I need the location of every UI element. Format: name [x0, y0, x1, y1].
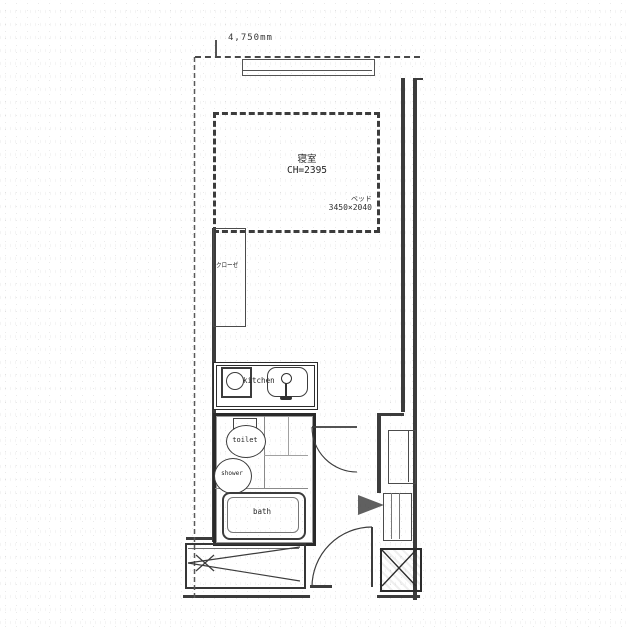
entry-arrow-icon: [358, 495, 384, 515]
stair-diagonal: [188, 547, 300, 563]
floor-plan-canvas: 4,750mm 寝室 CH=2395 ベッド 3450×2040 クローゼ ki…: [0, 0, 630, 630]
stair-diagonal: [188, 563, 300, 581]
plan-strokes-layer: [0, 0, 630, 630]
bathroom-door-arc: [312, 427, 357, 472]
entrance-door-arc: [312, 527, 372, 587]
